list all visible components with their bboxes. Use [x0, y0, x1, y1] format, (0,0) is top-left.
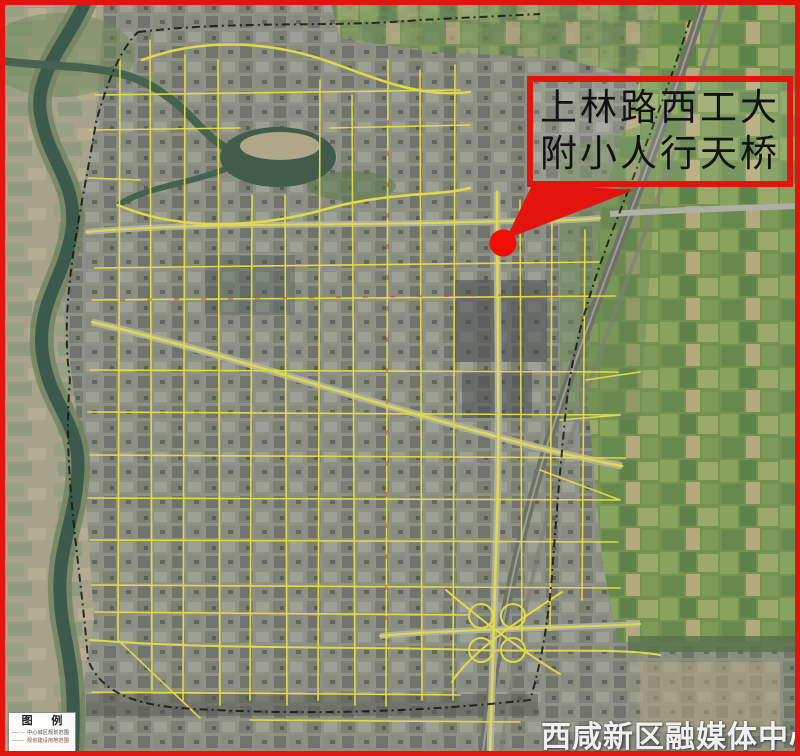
callout-box: 上林路西工大 附小人行天桥	[527, 76, 793, 187]
lake-island	[240, 132, 320, 160]
watermark-text: 西咸新区融媒体中心	[541, 712, 800, 756]
legend-symbol-boundary: —··—	[12, 730, 25, 736]
legend-symbol-builtup: ——	[12, 738, 25, 744]
legend-row: —— 规划建设用地范围	[12, 738, 72, 744]
location-marker-dot	[490, 230, 517, 257]
callout-text-line2: 附小人行天桥	[533, 132, 787, 178]
green-band	[628, 636, 800, 652]
legend-label: 中心城区规划范围	[27, 730, 69, 736]
map-legend: 图 例 —··— 中心城区规划范围 —— 规划建设用地范围	[8, 712, 76, 756]
legend-row: —··— 中心城区规划范围	[12, 730, 72, 736]
callout-text-line1: 上林路西工大	[533, 86, 787, 132]
legend-title: 图 例	[12, 715, 72, 728]
legend-label: 规划建设用地范围	[27, 738, 69, 744]
screenshot-root: 上林路西工大 附小人行天桥 图 例 —··— 中心城区规划范围 —— 规划建设用…	[0, 0, 800, 756]
